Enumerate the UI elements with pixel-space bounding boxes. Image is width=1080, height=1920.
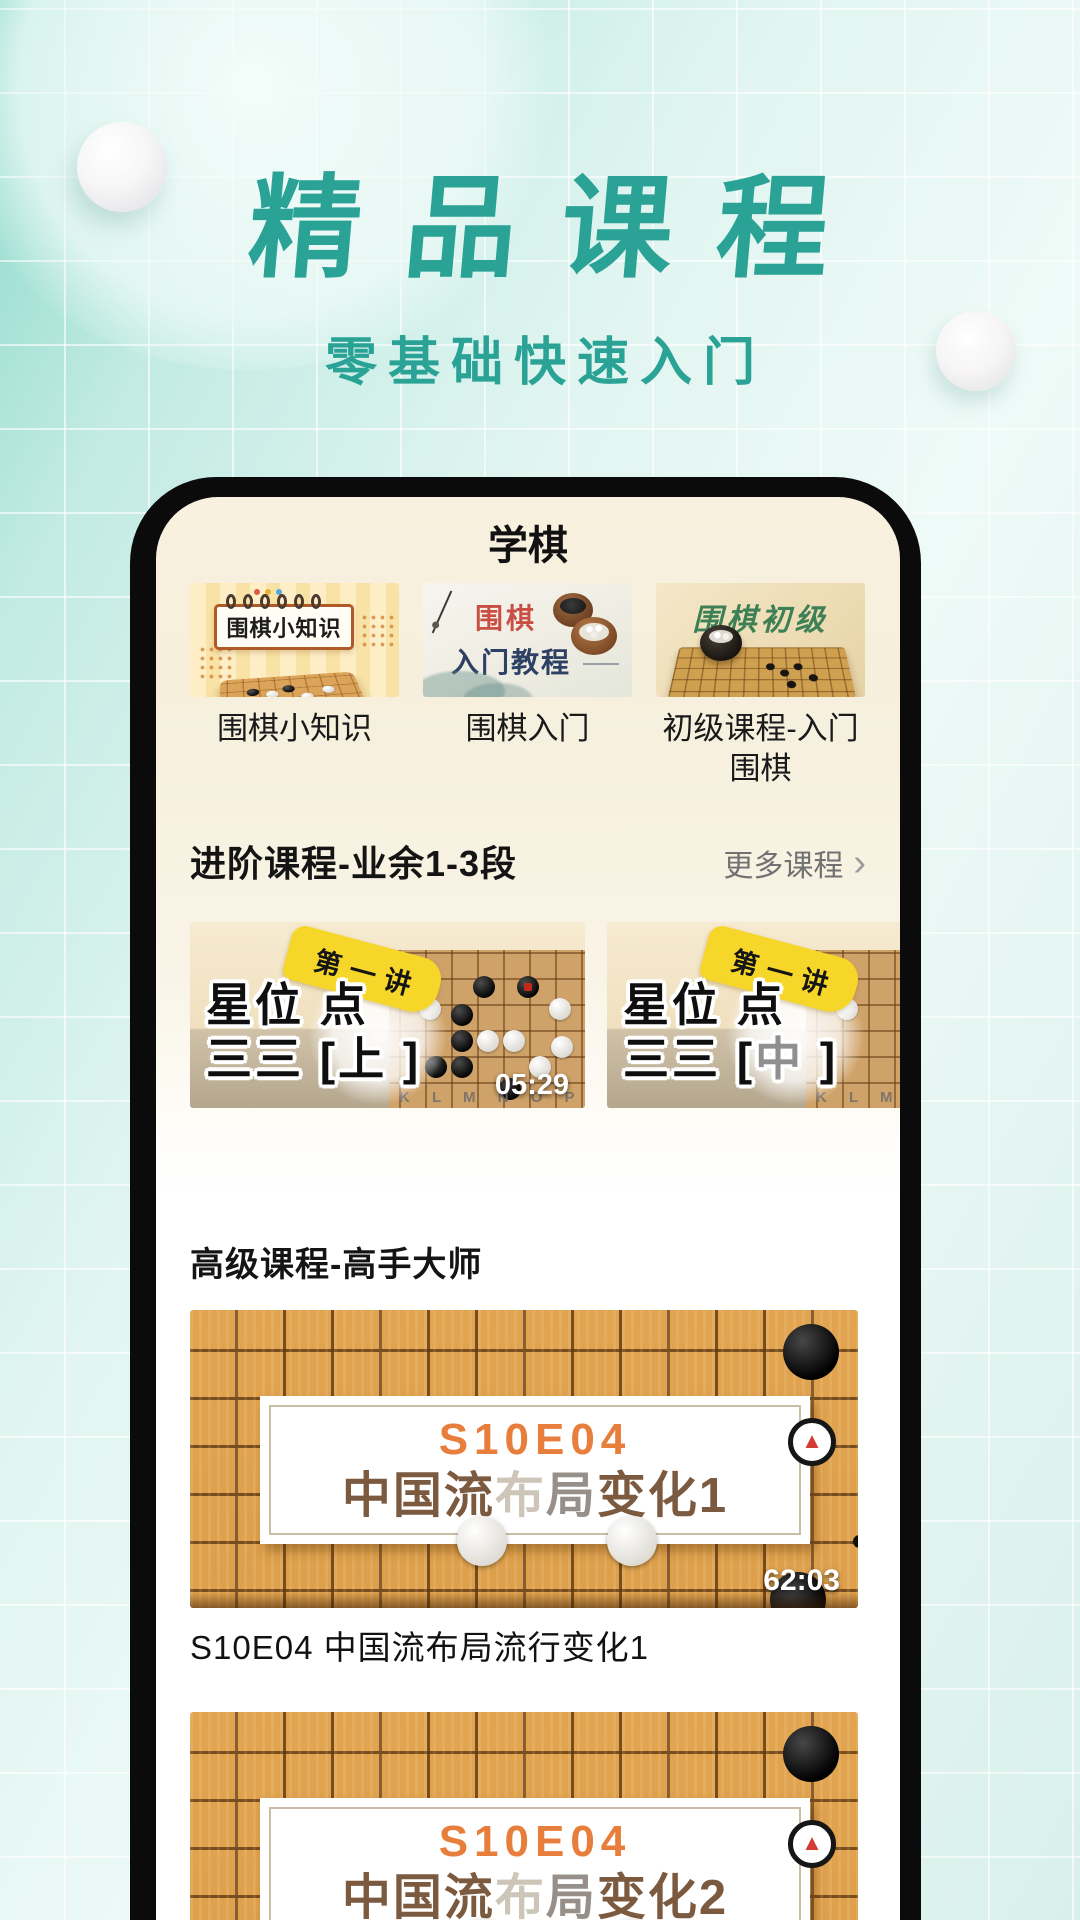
section-title: 进阶课程-业余1-3段: [190, 835, 517, 887]
phone-mockup: 学棋 围棋小知识: [130, 477, 921, 1920]
branch-illustration: [432, 591, 453, 634]
course-card-weiqi-beginner[interactable]: 围棋初级: [656, 583, 865, 697]
headline-line2: 三三 [中 ]: [623, 1032, 838, 1086]
hero-title: 精品课程: [0, 138, 1080, 300]
white-stone: [457, 1516, 507, 1566]
episode-banner: S10E04 中国流布局变化1: [260, 1396, 810, 1544]
course-card-weiqi-intro[interactable]: 围棋 入门教程: [423, 583, 632, 697]
spiral-binding-icon: [226, 594, 321, 609]
star-point: [853, 1535, 858, 1548]
video-duration: 05:29: [495, 1069, 569, 1102]
video-headline: 星位 点 三三 [中 ]: [623, 978, 838, 1086]
expand-button[interactable]: ▲: [788, 1418, 836, 1466]
course-card-weiqi-tips[interactable]: 围棋小知识: [190, 583, 399, 697]
app-screen: 学棋 围棋小知识: [156, 497, 900, 1920]
video-card-chinese-opening-1[interactable]: S10E04 中国流布局变化1 ▲ 62:03: [190, 1310, 858, 1608]
video-caption: S10E04 中国流布局流行变化1: [190, 1621, 649, 1669]
hero-subtitle: 零基础快速入门: [0, 320, 1080, 395]
more-courses-link[interactable]: 更多课程 ›: [723, 841, 866, 885]
headline-line1: 星位 点: [623, 978, 838, 1032]
headline-line1: 星位 点: [206, 978, 421, 1032]
course-card-title: 围棋小知识: [214, 604, 354, 650]
course-label: 初级课程-入门围棋: [656, 709, 865, 789]
quick-course-labels: 围棋小知识 围棋入门 初级课程-入门围棋: [190, 709, 866, 789]
go-board-illustration: [218, 672, 383, 697]
triangle-up-icon: ▲: [801, 1832, 823, 1854]
course-card-title: 围棋: [475, 597, 537, 637]
intermediate-video-row: K L M N O P 第一讲 星位 点 三三 [上 ] 05:29: [190, 922, 900, 1108]
chevron-right-icon: ›: [853, 848, 866, 878]
page-title: 学棋: [156, 513, 900, 571]
episode-banner: S10E04 中国流布局变化2: [260, 1798, 810, 1920]
video-card-sansan-part2[interactable]: K L M N 第一讲 星位 点 三三 [中 ]: [607, 922, 900, 1108]
episode-title: 中国流布局变化1: [342, 1468, 728, 1524]
video-duration: 62:03: [763, 1564, 840, 1598]
episode-code: S10E04: [439, 1818, 632, 1866]
video-headline: 星位 点 三三 [上 ]: [206, 978, 421, 1086]
episode-code: S10E04: [439, 1416, 632, 1464]
dot-pattern: [360, 613, 394, 649]
video-card-chinese-opening-2[interactable]: S10E04 中国流布局变化2 ▲: [190, 1712, 858, 1920]
advanced-section-title: 高级课程-高手大师: [190, 1237, 482, 1286]
more-courses-label: 更多课程: [723, 841, 843, 885]
black-stone: [783, 1324, 839, 1380]
go-bowl-icon: [700, 625, 742, 661]
episode-title: 中国流布局变化2: [342, 1870, 728, 1920]
course-label: 围棋入门: [423, 709, 632, 789]
quick-course-row: 围棋小知识 围棋 入门教程: [190, 583, 866, 697]
intermediate-section-header: 进阶课程-业余1-3段 更多课程 ›: [190, 835, 866, 887]
triangle-up-icon: ▲: [801, 1430, 823, 1452]
black-stone: [783, 1726, 839, 1782]
white-stone: [607, 1516, 657, 1566]
divider-line: [583, 663, 619, 665]
course-card-title: 围棋初级: [656, 595, 865, 639]
promo-page: 精品课程 零基础快速入门 学棋 围棋小知识: [0, 0, 1080, 1920]
video-card-sansan-part1[interactable]: K L M N O P 第一讲 星位 点 三三 [上 ] 05:29: [190, 922, 585, 1108]
headline-line2: 三三 [上 ]: [206, 1032, 421, 1086]
go-board-illustration: [668, 647, 856, 697]
expand-button[interactable]: ▲: [788, 1820, 836, 1868]
go-bowl-icon: [571, 617, 617, 655]
course-label: 围棋小知识: [190, 709, 399, 789]
dot-pattern: [198, 645, 232, 681]
